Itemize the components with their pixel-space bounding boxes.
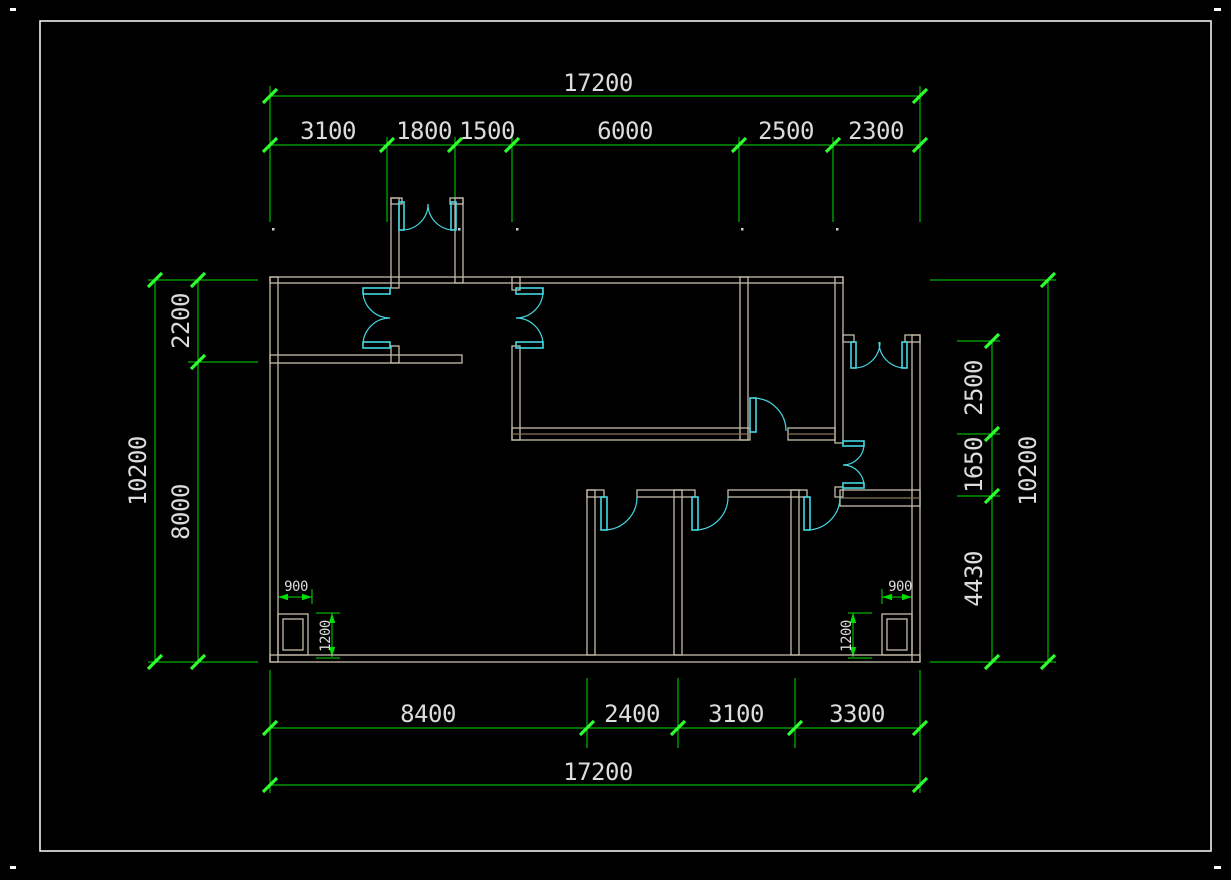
dimension-label: 17200: [563, 758, 633, 786]
dimension-label: 1650: [960, 437, 988, 493]
endpoint-dot: [836, 228, 839, 231]
dimension-label: 3100: [300, 117, 356, 145]
dimension-label: 2500: [758, 117, 814, 145]
dimension-label: 3300: [829, 700, 885, 728]
dimension-label: 10200: [124, 436, 152, 506]
dimension-label: 2300: [848, 117, 904, 145]
dimension-label: 2400: [604, 700, 660, 728]
dimension-label: 8400: [400, 700, 456, 728]
dimension-label: 900: [888, 579, 912, 595]
sheet-corner-mark: [1214, 866, 1221, 869]
floor-plan-drawing: 1720031001800150060002500230084002400310…: [0, 0, 1231, 880]
endpoint-dot: [272, 228, 275, 231]
dimension-label: 1200: [318, 620, 334, 652]
dimension-label: 2500: [960, 360, 988, 416]
endpoint-dot: [741, 228, 744, 231]
dimension-label: 900: [284, 579, 308, 595]
dimension-label: 1800: [396, 117, 452, 145]
dimension-label: 4430: [960, 551, 988, 607]
dimension-label: 2200: [167, 293, 195, 349]
dimension-label: 17200: [563, 69, 633, 97]
endpoint-dot: [516, 228, 519, 231]
dimension-label: 10200: [1014, 436, 1042, 506]
sheet-corner-mark: [10, 866, 16, 869]
dimension-label: 1200: [839, 620, 855, 652]
sheet-corner-mark: [1214, 8, 1221, 11]
sheet-corner-mark: [10, 8, 16, 11]
dimension-label: 6000: [597, 117, 653, 145]
endpoint-dot: [458, 228, 461, 231]
cad-viewport[interactable]: 1720031001800150060002500230084002400310…: [0, 0, 1231, 880]
dimension-label: 1500: [459, 117, 515, 145]
dimension-label: 3100: [708, 700, 764, 728]
dimension-label: 8000: [167, 484, 195, 540]
